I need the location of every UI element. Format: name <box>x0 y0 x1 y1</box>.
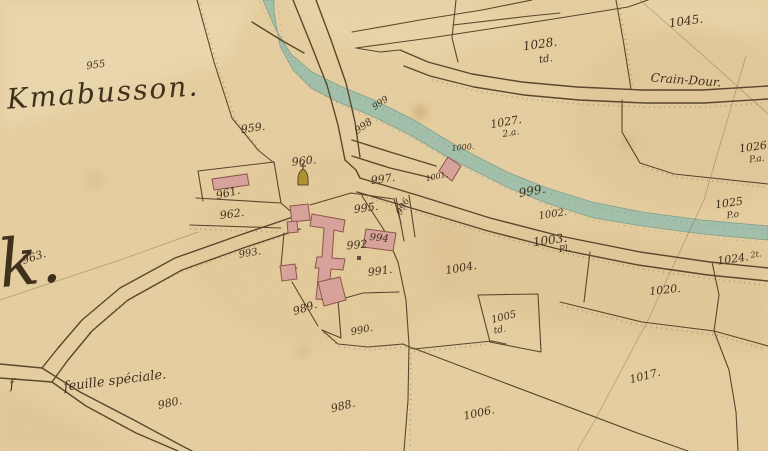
parcel-label: 959. <box>240 121 266 135</box>
parcel-label: 994 <box>369 233 389 245</box>
parcel-sub-label: td. <box>539 54 554 66</box>
parcel-label: 997. <box>370 172 396 186</box>
parcel-label: 960. <box>291 154 317 168</box>
parcel-label: 962. <box>219 207 245 221</box>
parcel-label: 991. <box>367 264 393 278</box>
parcel-sub-label: P.o <box>726 211 740 222</box>
parcel-label: 992 <box>346 239 368 252</box>
parcel-sub-label: Pl. <box>559 245 572 256</box>
parcel-label: 1020. <box>649 283 681 297</box>
parcel-sub-label: 2t. <box>750 250 762 259</box>
parcel-label: 995. <box>353 201 379 215</box>
cadastral-map: Kmabusson.k.feuille spéciale.fCrain-Dour… <box>0 0 768 451</box>
